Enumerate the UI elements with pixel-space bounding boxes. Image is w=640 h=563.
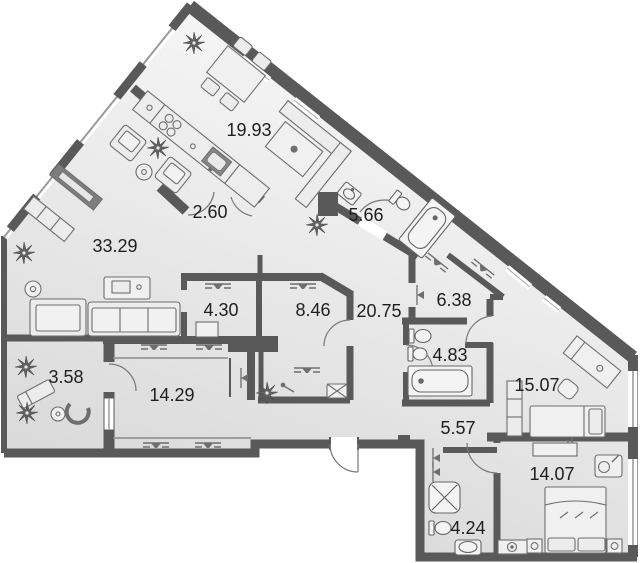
bed-double bbox=[545, 487, 606, 553]
washing-machine-icon bbox=[327, 384, 347, 398]
sink-icon bbox=[455, 540, 481, 555]
room-label-kitchen: 19.93 bbox=[226, 120, 271, 140]
nightstand bbox=[607, 539, 622, 553]
room-label-wardrobe-left: 4.30 bbox=[203, 300, 238, 320]
room-label-bath-top: 5.66 bbox=[348, 205, 383, 225]
room-label-wardrobe-center: 8.46 bbox=[295, 300, 330, 320]
room-label-hallway: 20.75 bbox=[356, 301, 401, 321]
radiator-box bbox=[498, 540, 527, 554]
floor-plan-svg: 19.93 2.60 5.66 33.29 4.30 8.46 20.75 6.… bbox=[0, 0, 640, 563]
entrance-door bbox=[330, 437, 358, 472]
plant-icon bbox=[256, 382, 278, 404]
room-label-bath-bottom: 4.24 bbox=[450, 518, 485, 538]
toilet-icon bbox=[429, 521, 451, 535]
bed-single bbox=[530, 406, 605, 437]
plant-icon bbox=[147, 137, 169, 159]
room-label-balcony: 3.58 bbox=[48, 367, 83, 387]
shower-cabin-icon bbox=[429, 482, 460, 513]
room-label-bedroom-bottom: 14.07 bbox=[529, 464, 574, 484]
room-label-bedroom-left: 14.29 bbox=[149, 385, 194, 405]
bathtub-icon bbox=[408, 366, 472, 396]
sink-icon bbox=[408, 347, 427, 361]
room-label-vestibule: 2.60 bbox=[192, 202, 227, 222]
room-label-bath-middle: 4.83 bbox=[432, 345, 467, 365]
plant-icon bbox=[306, 214, 328, 236]
floor-plan-page: 19.93 2.60 5.66 33.29 4.30 8.46 20.75 6.… bbox=[0, 0, 640, 563]
sofa bbox=[30, 299, 180, 336]
plant-icon bbox=[16, 402, 38, 424]
room-label-living: 33.29 bbox=[92, 236, 137, 256]
plant-icon bbox=[15, 356, 37, 378]
vanity bbox=[595, 455, 622, 477]
plant-icon bbox=[13, 242, 35, 264]
nightstand bbox=[527, 539, 542, 553]
plant-icon bbox=[183, 32, 205, 54]
room-label-wardrobe-right: 6.38 bbox=[436, 290, 471, 310]
toilet-icon bbox=[409, 329, 431, 343]
room-label-bedroom-right: 15.07 bbox=[514, 375, 559, 395]
room-label-entry: 5.57 bbox=[440, 418, 475, 438]
